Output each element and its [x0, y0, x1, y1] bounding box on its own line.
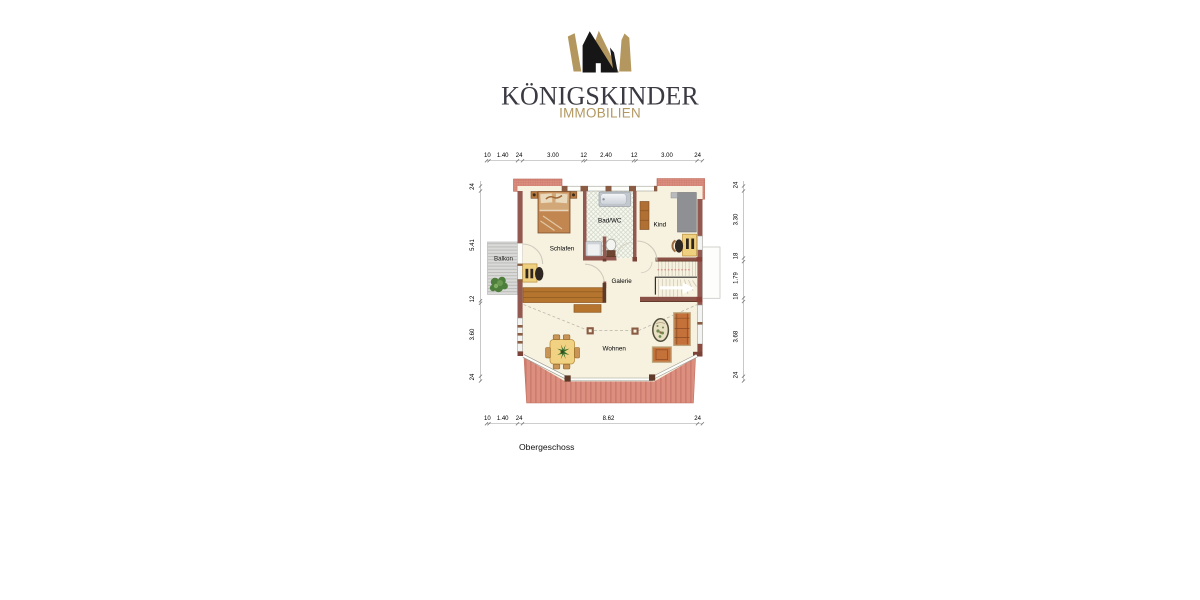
svg-text:12: 12 — [580, 153, 587, 159]
svg-text:24: 24 — [694, 153, 701, 159]
svg-text:24: 24 — [470, 373, 476, 380]
svg-text:3.68: 3.68 — [734, 330, 740, 342]
svg-text:18: 18 — [734, 252, 740, 259]
svg-text:Kind: Kind — [654, 221, 667, 228]
svg-text:3.30: 3.30 — [734, 213, 740, 225]
svg-text:10: 10 — [484, 416, 491, 422]
svg-text:3.60: 3.60 — [470, 328, 476, 340]
svg-text:24: 24 — [516, 153, 523, 159]
svg-text:2.40: 2.40 — [600, 153, 612, 159]
svg-text:1.40: 1.40 — [497, 153, 509, 159]
svg-text:3.00: 3.00 — [547, 153, 559, 159]
svg-text:1.79: 1.79 — [734, 272, 740, 284]
svg-text:24: 24 — [694, 416, 701, 422]
svg-text:1.40: 1.40 — [497, 416, 509, 422]
svg-text:24: 24 — [734, 371, 740, 378]
svg-text:12: 12 — [631, 153, 638, 159]
svg-text:Balkon: Balkon — [494, 255, 513, 262]
svg-text:5.41: 5.41 — [470, 239, 476, 251]
svg-text:Schlafen: Schlafen — [550, 245, 575, 252]
svg-text:IMMOBILIEN: IMMOBILIEN — [559, 106, 641, 121]
svg-text:3.00: 3.00 — [661, 153, 673, 159]
svg-text:24: 24 — [516, 416, 523, 422]
svg-text:24: 24 — [734, 181, 740, 188]
svg-text:Obergeschoss: Obergeschoss — [519, 442, 574, 452]
svg-text:8.62: 8.62 — [603, 416, 615, 422]
svg-text:Bad/WC: Bad/WC — [598, 218, 622, 225]
svg-text:10: 10 — [484, 153, 491, 159]
svg-text:Galerie: Galerie — [612, 278, 633, 285]
svg-text:24: 24 — [470, 183, 476, 190]
svg-text:12: 12 — [470, 295, 476, 302]
svg-text:Wohnen: Wohnen — [603, 345, 627, 352]
svg-text:18: 18 — [734, 292, 740, 299]
